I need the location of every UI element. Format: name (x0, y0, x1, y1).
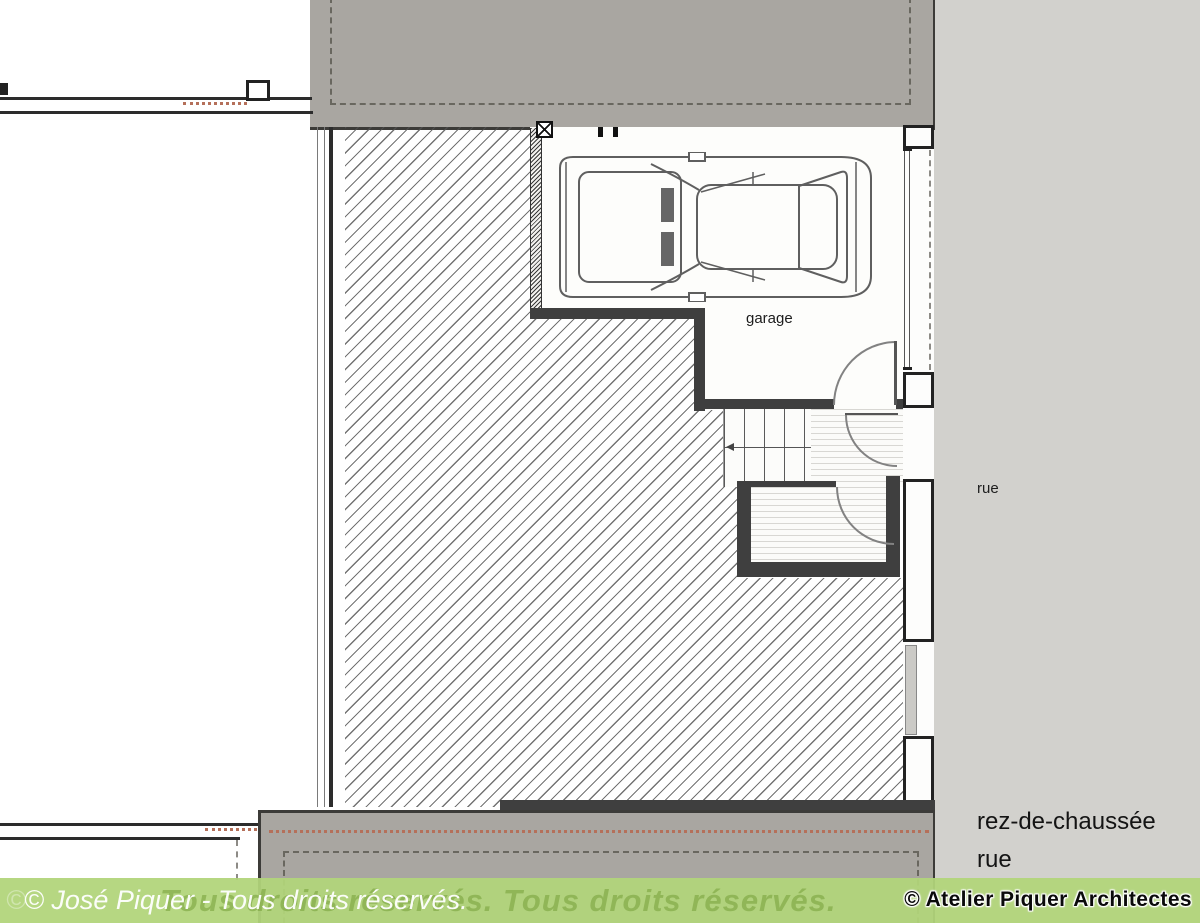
facade-wall-segment (903, 479, 934, 642)
left-facade-wall (329, 127, 333, 807)
facade-prong-right (613, 127, 618, 137)
left-facade-line2 (324, 127, 325, 807)
street-area (933, 0, 1200, 923)
floor-title: rez-de-chaussée (977, 808, 1156, 836)
axis-red-dotted-bottom (205, 828, 257, 831)
owner-watermark-text: © José Piquer - Tous droits réservés. (24, 885, 468, 916)
floor-plan-page: garage rue rez-de-chaussée rue Tous droi… (0, 0, 1200, 923)
garage-door-cap-top (903, 148, 912, 151)
stair-mid-line (724, 447, 812, 448)
facade-dashed-line (929, 150, 931, 370)
party-wall-bottom-line1 (0, 823, 260, 826)
upper-setback-dashed-line (330, 0, 911, 105)
street-label: rue (977, 480, 999, 497)
garage-wall-south-upper (530, 308, 705, 319)
small-room-wall-bottom (737, 562, 900, 577)
axis-red-dotted-lower-block (269, 830, 929, 833)
floor-subtitle: rue (977, 846, 1012, 874)
courtyard-south-wall (500, 800, 935, 810)
party-wall-bottom-line2 (0, 837, 240, 840)
staircase (723, 409, 813, 487)
small-room-wall-top (737, 481, 836, 487)
garage-label: garage (746, 310, 793, 327)
boundary-dashed-bottom (236, 840, 238, 880)
facade-window (905, 645, 917, 735)
wall-notch-pier (246, 80, 270, 101)
party-wall-top-line2 (0, 111, 313, 114)
column-x-symbol (536, 121, 553, 138)
wall-edge-stub (0, 83, 8, 95)
garage-wall-south-lower (703, 399, 834, 409)
studio-credit-text: © Atelier Piquer Architectes (904, 888, 1192, 912)
stair-direction-arrow (726, 443, 734, 451)
left-facade-line1 (317, 127, 318, 807)
ghost-copyright-symbol: © (6, 885, 26, 916)
garage-insulated-wall (530, 128, 542, 312)
facade-pier-2 (903, 372, 934, 408)
garage-door-cap-bottom (903, 367, 912, 370)
facade-pier-3 (903, 736, 934, 807)
footer-watermark-bar: Tous droits réservés. Tous droits réserv… (0, 878, 1200, 923)
entry-door-leaf (845, 413, 898, 415)
axis-red-dotted-top (183, 102, 247, 105)
upper-building-mass (310, 0, 935, 130)
facade-prong-left (598, 127, 603, 137)
facade-pier-1 (903, 125, 934, 149)
garage-wall-step (694, 308, 705, 411)
garage-door-leaf (894, 341, 897, 405)
car-top-view-drawing (553, 152, 875, 302)
garage-sectional-door (904, 150, 910, 368)
